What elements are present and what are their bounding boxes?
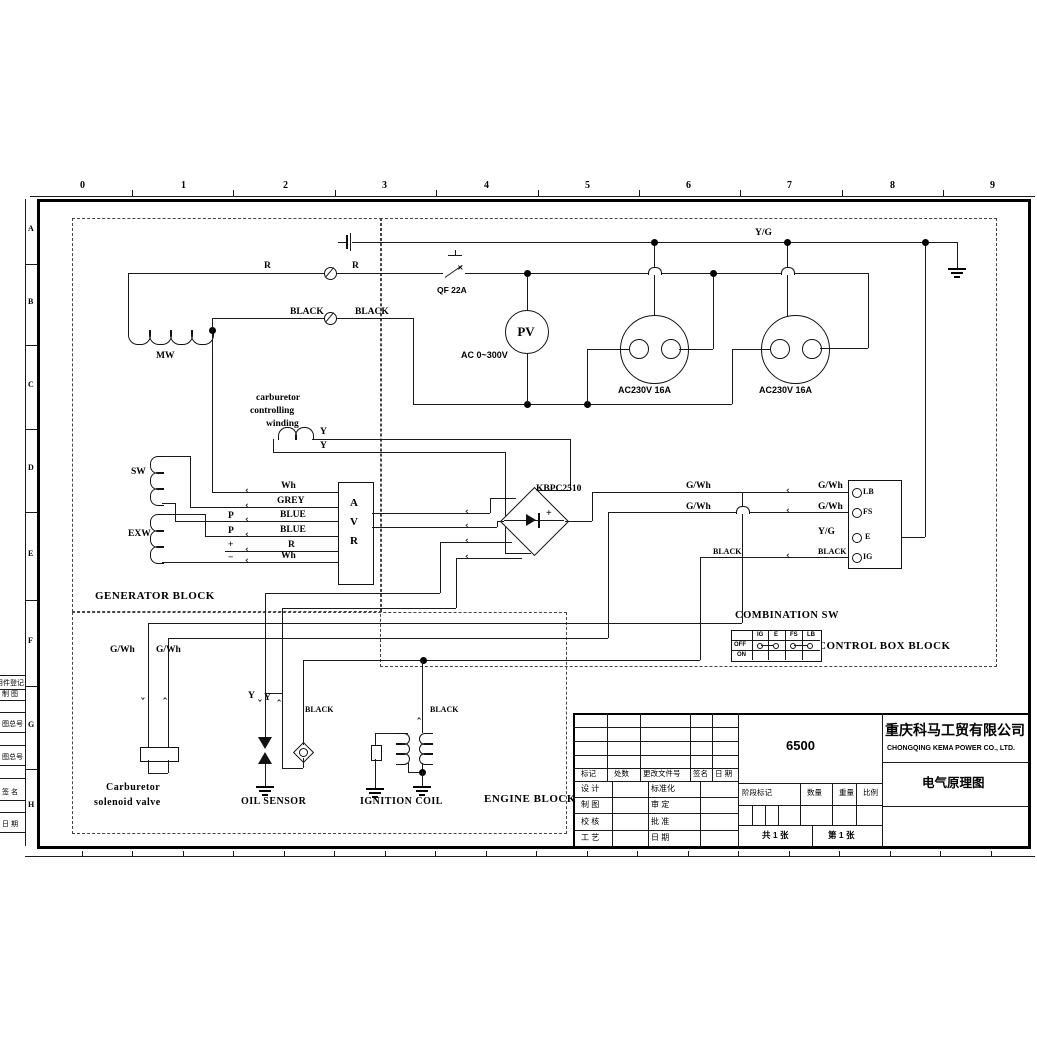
wire [372,513,490,514]
wire-hop [736,506,750,514]
titleblock-line [738,713,739,846]
wire [465,273,649,274]
titleblock-line [778,805,779,825]
row-divider [25,429,37,430]
ignition-coil-label: IGNITION COIL [360,797,443,807]
wire [732,349,733,404]
earth-icon [256,786,274,788]
titleblock-line [700,781,701,846]
breaker-label: QF 22A [437,286,467,295]
margin-divider [0,812,25,813]
margin-note: 图总号 [2,754,23,761]
wire [338,242,346,243]
ruler-tick [839,851,840,856]
sw-contact [773,643,779,649]
wire [490,498,516,499]
earth-icon [948,268,966,270]
sw-col: FS [790,632,798,638]
titleblock-line [765,805,766,825]
winding-label: EXW [128,530,151,540]
rev-header: 标记 [581,770,596,778]
titleblock-line [800,783,801,805]
stage-header: 数量 [807,789,822,797]
titleblock-line [648,781,649,846]
wire [608,512,737,513]
winding-caption: carburetor [256,394,300,404]
wire-label: G/Wh [686,482,711,492]
ruler-tick [536,851,537,856]
sw-row: ON [737,652,746,658]
ruler-row: C [28,381,34,389]
schematic-sheet: 0 1 2 3 4 5 6 7 8 9 A B C D E F G H 用件登记 [0,0,1037,1037]
margin-divider [0,689,25,690]
wire [265,593,266,693]
sw-contact [757,643,763,649]
wire [282,608,456,609]
wire [273,439,274,452]
ruler-tick [991,851,992,856]
control-box-outline [380,218,997,667]
wire [490,498,491,513]
company-name-cn: 重庆科马工贸有限公司 [885,723,1025,737]
earth-icon [259,790,271,792]
sw-contact [807,643,813,649]
terminal-pin [852,488,862,498]
wire-label: G/Wh [818,482,843,492]
wire [527,276,528,311]
title-row: 批 准 [651,818,669,826]
rev-header: 处数 [614,770,629,778]
ruler-tick [132,851,133,856]
titleblock-line [882,806,1029,807]
margin-note: 图总号 [2,721,23,728]
sw-contact [794,645,807,646]
wire [175,503,176,521]
titleblock-line [752,805,753,825]
ruler-tick [233,190,234,196]
ruler-col: 1 [181,181,186,191]
ruler-col: 7 [787,181,792,191]
wire-label: Y/G [818,528,835,538]
rectifier-label: KBPC2510 [536,485,581,495]
wire [175,521,338,522]
voltmeter-label: PV [505,310,547,352]
ruler-tick [183,851,184,856]
margin-divider [0,700,25,701]
stage-header: 比例 [863,789,878,797]
wire-label: BLUE [280,511,306,521]
sw-row: OFF [734,642,746,648]
wire-label: P [228,512,234,522]
wire [148,773,168,774]
titleblock-line [882,762,1029,763]
sw-col: LB [807,632,815,638]
ruler-tick [890,851,891,856]
ruler-col: 2 [283,181,288,191]
rev-header: 日 期 [715,770,732,778]
wire [505,452,506,553]
title-row: 工 艺 [581,834,599,842]
wire [265,693,266,737]
wire [265,764,266,786]
titleblock-line [573,755,738,756]
wire [273,452,505,453]
titleblock-line [640,713,641,781]
margin-divider [0,732,25,733]
top-ruler-line [30,196,1035,197]
breaker-icon [448,255,462,256]
wire-label: BLACK [818,548,846,556]
row-divider [25,600,37,601]
title-row: 制 图 [581,801,599,809]
junction-dot [651,239,658,246]
row-strip-line [25,199,26,846]
titleblock-line [832,783,833,805]
titleblock-line [856,805,857,825]
row-divider [25,512,37,513]
title-row: 标准化 [651,785,675,793]
wire-label: G/Wh [156,646,181,656]
bottom-ruler-line [25,856,1035,857]
sw-col: IG [757,632,763,638]
wire-label: Y [320,442,327,452]
titleblock-line [738,825,882,826]
earth-icon [416,790,428,792]
terminal-label: E [865,533,870,541]
wire [654,245,655,316]
wire [312,439,570,440]
meter-range-label: AC 0~300V [461,351,508,360]
company-name-en: CHONGQING KEMA POWER CO., LTD. [887,745,1015,752]
ruler-tick [335,190,336,196]
wire [732,349,770,350]
ruler-tick [486,851,487,856]
wire [440,542,441,593]
wire [205,514,206,536]
wire [408,763,409,772]
titleblock-line [738,783,882,784]
title-row: 审 定 [651,801,669,809]
titleblock-line [573,713,575,846]
margin-note: 签 名 [2,789,18,796]
row-divider [25,686,37,687]
wire-label: + [228,541,233,551]
wire [375,733,376,745]
earth-icon [366,788,384,790]
wire [505,553,531,554]
terminal-label: IG [863,553,872,561]
titleblock-line [832,805,833,825]
titleblock-line [573,727,738,728]
margin-divider [0,832,25,833]
wire-hop [648,267,662,275]
wire [422,772,423,786]
winding-caption: controlling [250,407,294,417]
ruler-col: 9 [990,181,995,191]
wire [592,492,593,521]
outlet-pin [802,339,822,359]
ruler-row: A [28,225,34,233]
margin-divider [0,765,25,766]
combination-sw-title: COMBINATION SW [735,611,839,622]
wire [820,348,868,349]
wire [303,660,700,661]
titleblock-line [607,713,608,781]
titleblock-line [712,713,713,781]
wire [168,638,608,639]
wire [212,330,213,492]
diode-icon [258,752,272,764]
wire-label: R [288,541,295,551]
terminal-pin [852,508,862,518]
wire-label: P [228,527,234,537]
wire [925,245,926,537]
sw-contact [761,645,773,646]
wire-label: Wh [281,482,296,492]
ruler-tick [940,851,941,856]
wire-label: G/Wh [686,503,711,513]
wire [148,623,742,624]
wire-label: Y [248,692,255,702]
wire-label: BLACK [305,706,333,714]
ruler-tick [587,851,588,856]
junction-dot [784,239,791,246]
stage-header: 重量 [839,789,854,797]
ruler-tick [789,851,790,856]
ruler-col: 4 [484,181,489,191]
wire-label: BLUE [280,526,306,536]
titleblock-line [812,825,813,846]
outlet-pin [629,339,649,359]
avr-label: A [350,498,358,509]
ruler-tick [284,851,285,856]
earth-icon [951,272,963,274]
margin-divider [0,778,25,779]
wire-label: − [228,554,233,564]
wire [168,760,169,773]
avr-label: V [350,517,358,528]
terminal-label: FS [863,508,872,516]
solenoid-valve [140,747,179,762]
rectifier-diode-icon [538,513,540,528]
wire-label: R [264,262,271,272]
ruler-tick [943,190,944,196]
wire [527,353,528,404]
wire [128,273,129,330]
wire [162,562,338,563]
wire [212,318,213,330]
wire [679,349,713,350]
titleblock-line [573,781,738,782]
wire [422,660,423,733]
avr-label: R [350,536,358,547]
ruler-col: 3 [382,181,387,191]
junction-dot [922,239,929,246]
spark-plug-icon [371,745,382,761]
wire [868,273,869,348]
wire [162,503,175,504]
wire [213,318,413,319]
rev-header: 签名 [693,770,708,778]
wire [592,492,848,493]
ruler-col: 5 [585,181,590,191]
row-divider [25,264,37,265]
ruler-tick [385,851,386,856]
ground-icon [346,235,348,249]
wire [570,439,571,490]
wire-label: Y [320,428,327,438]
wire [282,693,283,768]
ruler-tick [637,851,638,856]
margin-note: 制 图 [2,691,18,698]
outlet-label: AC230V 16A [618,386,671,395]
wire-hop [781,267,795,275]
ruler-tick [639,190,640,196]
sheet-number: 第 1 张 [828,831,854,840]
rectifier-plus: + [546,509,552,519]
wire [375,759,376,788]
rev-header: 更改文件号 [643,770,681,778]
titleblock-line [612,781,613,846]
ruler-col: 0 [80,181,85,191]
wire [190,456,191,507]
sheet-total: 共 1 张 [762,831,788,840]
margin-divider [0,745,25,746]
wire [440,542,512,543]
wire [190,507,338,508]
ruler-tick [842,190,843,196]
wire [148,623,149,747]
wire [700,557,848,558]
title-row: 日 期 [651,834,669,842]
document-title: 电气原理图 [922,777,985,790]
table-line [785,630,786,660]
wire [303,660,304,745]
wire [148,760,149,773]
ruler-tick [132,190,133,196]
ruler-tick [334,851,335,856]
oil-lamp-icon [299,748,308,757]
ruler-tick [738,851,739,856]
titleblock-line [690,713,691,781]
earth-icon [369,792,381,794]
wire-label: Wh [281,552,296,562]
wire [587,349,629,350]
ruler-tick [435,851,436,856]
outlet-pin [770,339,790,359]
wire-label: Y/G [755,229,772,239]
wire [456,558,457,608]
title-row: 校 核 [581,818,599,826]
ruler-row: H [28,801,34,809]
wire [792,273,868,274]
terminal-label: LB [863,488,874,496]
ruler-row: B [28,298,33,306]
titleblock-line [573,797,738,798]
ruler-col: 6 [686,181,691,191]
sw-contact [790,643,796,649]
wire-label: BLACK [430,706,458,714]
wire [282,608,283,693]
wire [713,276,714,349]
table-line [752,630,753,660]
wire-label: G/Wh [110,646,135,656]
wire-label: BLACK [290,308,324,318]
titleblock-line [738,805,882,806]
wire [128,273,443,274]
generator-block-label: GENERATOR BLOCK [95,591,215,602]
wire [282,768,303,769]
wire [413,318,414,404]
wire-label: R [352,262,359,272]
wire [162,456,190,457]
engine-block-label: ENGINE BLOCK [484,794,576,805]
wire [787,245,788,316]
margin-divider [0,675,25,676]
wire [303,758,304,768]
ruler-tick [233,851,234,856]
wire-label: G/Wh [818,503,843,513]
oil-sensor-label: OIL SENSOR [241,797,306,807]
wire-label: BLACK [713,548,741,556]
ruler-row: F [28,637,33,645]
wire [372,527,497,528]
title-row: 设 计 [581,785,599,793]
sw-col: E [774,632,778,638]
wire [205,536,338,537]
ruler-tick [740,190,741,196]
ruler-tick [538,190,539,196]
model-number: 6500 [786,739,815,752]
diode-icon [258,737,272,749]
wire-label: GREY [277,497,304,507]
terminal-pin [852,533,862,543]
control-box-label: CONTROL BOX BLOCK [818,641,951,652]
titleblock-line [882,713,883,846]
earth-icon [413,786,431,788]
winding-label: SW [131,468,146,478]
ruler-tick [82,851,83,856]
rectifier-diode-icon [526,514,536,526]
titleblock-line [856,783,857,805]
wire [413,404,732,405]
stage-header: 阶段标记 [742,789,772,797]
solenoid-caption: solenoid valve [94,798,161,808]
outlet-pin [661,339,681,359]
ruler-tick [436,190,437,196]
wire [700,557,701,660]
ruler-row: E [28,550,33,558]
wire [212,492,338,493]
outlet-label: AC230V 16A [759,386,812,395]
row-divider [25,345,37,346]
solenoid-caption: Carburetor [106,783,160,793]
titleblock-line [573,741,738,742]
margin-divider [0,800,25,801]
earth-icon [954,276,960,278]
titleblock-line [573,830,738,831]
wire [162,514,205,515]
wire [565,521,592,522]
wire [608,512,609,638]
row-divider [25,769,37,770]
ruler-col: 8 [890,181,895,191]
winding-label: MW [156,352,174,362]
wire [659,273,782,274]
wire [265,593,440,594]
ruler-tick [688,851,689,856]
wire-label: BLACK [355,308,389,318]
